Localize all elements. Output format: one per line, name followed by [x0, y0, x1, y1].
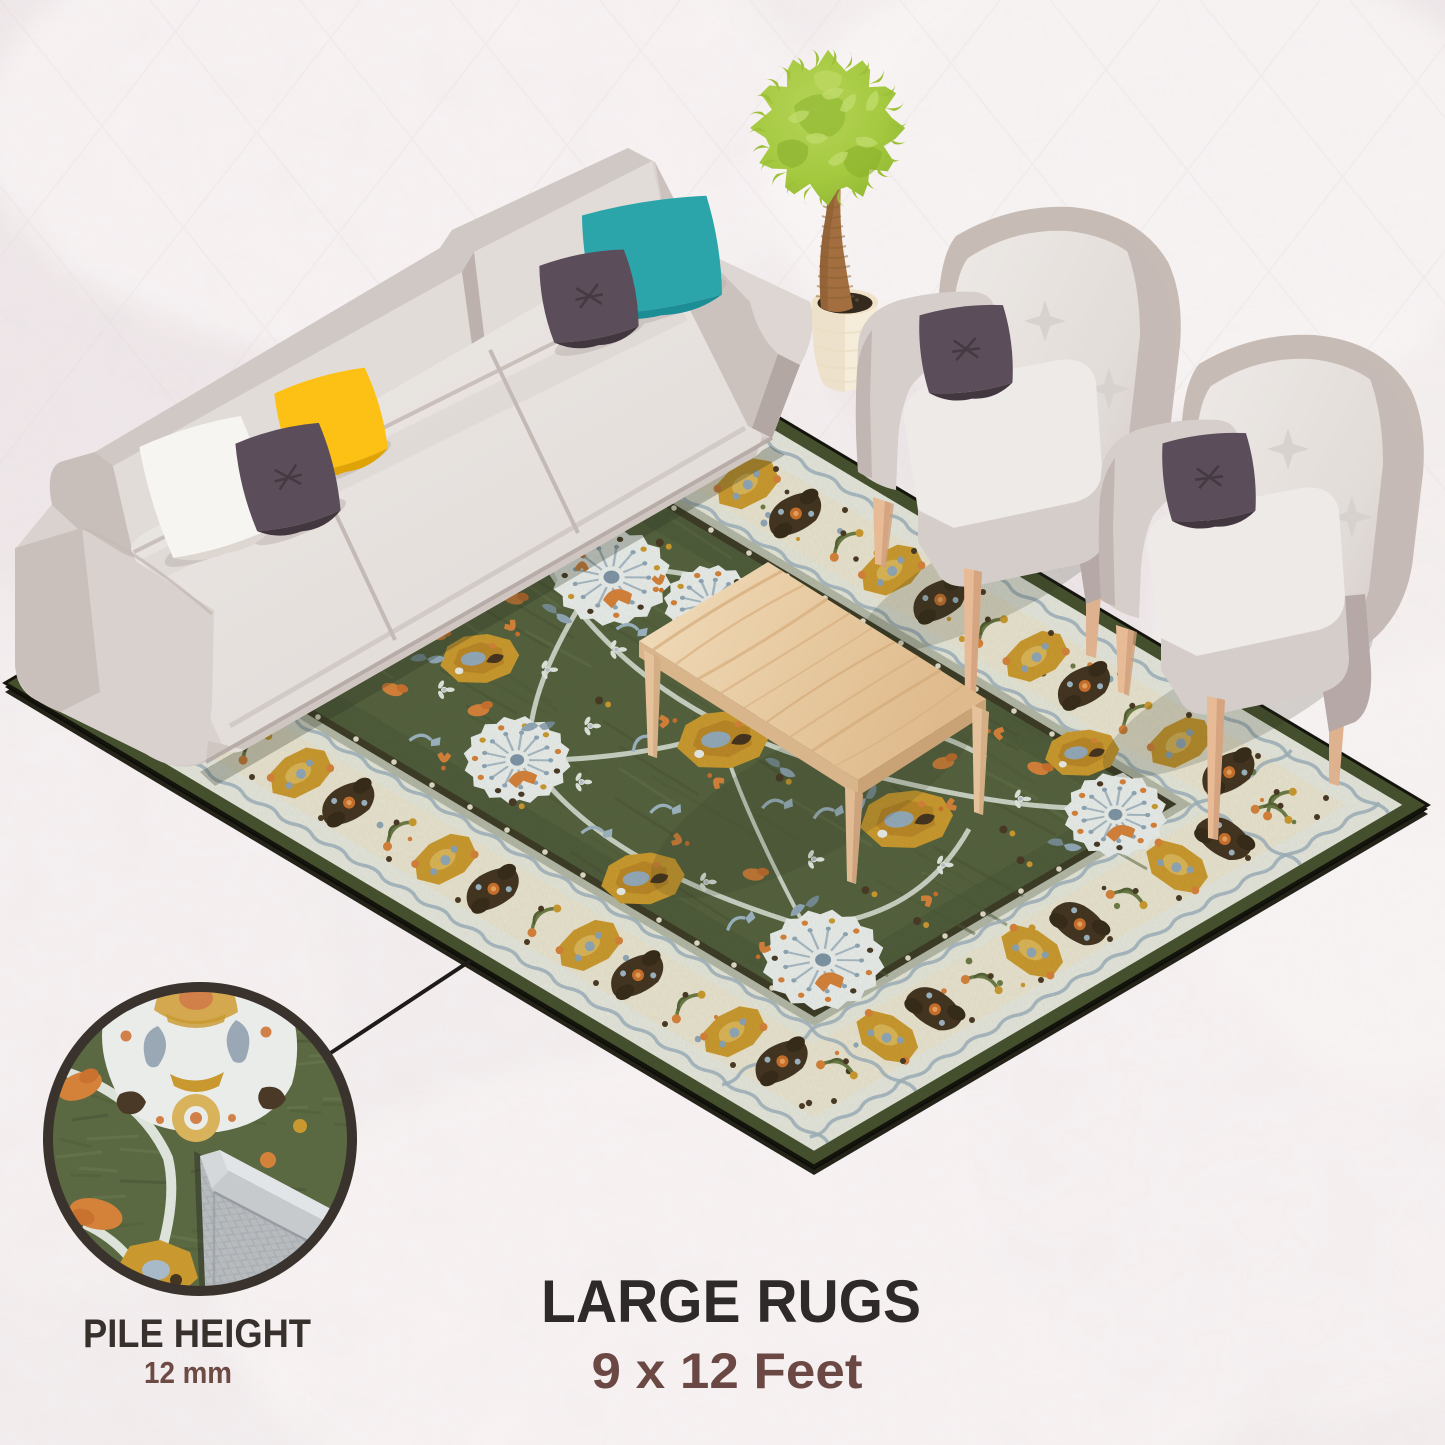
svg-text:12 mm: 12 mm: [144, 1355, 232, 1390]
svg-text:LARGE RUGS: LARGE RUGS: [541, 1268, 921, 1335]
svg-text:PILE HEIGHT: PILE HEIGHT: [83, 1312, 311, 1356]
svg-text:9 x 12 Feet: 9 x 12 Feet: [592, 1343, 863, 1399]
